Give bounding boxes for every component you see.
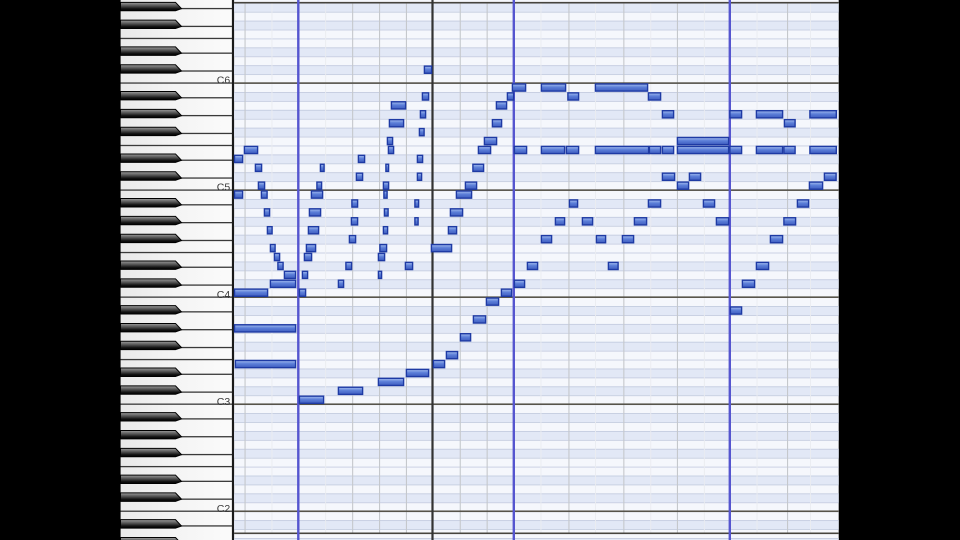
svg-text:C4: C4 <box>217 289 231 301</box>
svg-text:C3: C3 <box>217 396 231 408</box>
svg-text:C5: C5 <box>217 182 231 194</box>
svg-text:C6: C6 <box>217 75 231 87</box>
svg-text:C2: C2 <box>217 503 231 515</box>
